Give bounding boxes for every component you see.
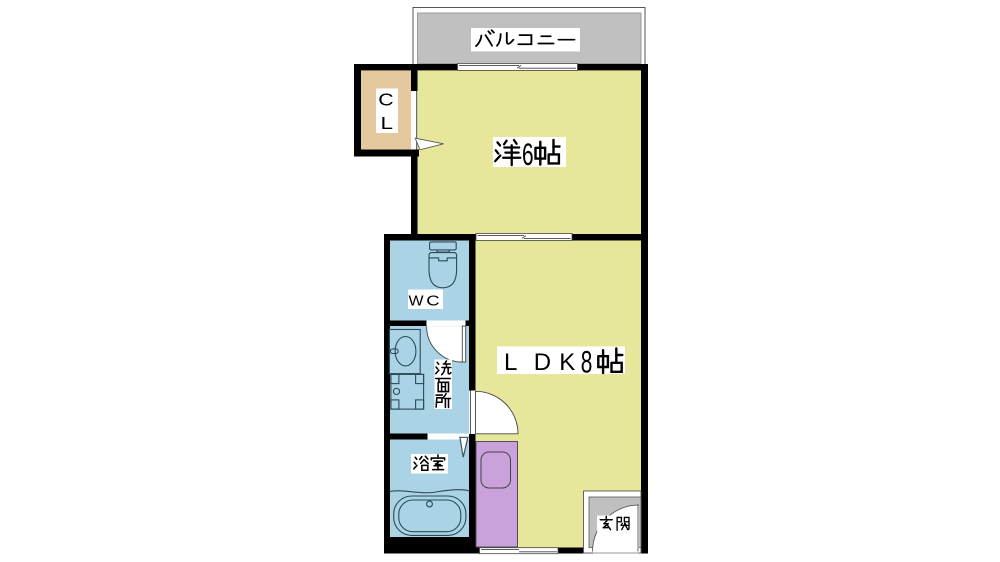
svg-text:6: 6 [522, 136, 534, 171]
svg-text:C: C [426, 292, 439, 309]
svg-text:8: 8 [581, 344, 593, 379]
svg-text:K: K [559, 349, 575, 376]
svg-text:C: C [378, 90, 393, 110]
svg-text:D: D [534, 349, 551, 376]
svg-text:L: L [381, 114, 394, 133]
svg-text:W: W [409, 293, 425, 309]
svg-text:L: L [504, 349, 517, 376]
